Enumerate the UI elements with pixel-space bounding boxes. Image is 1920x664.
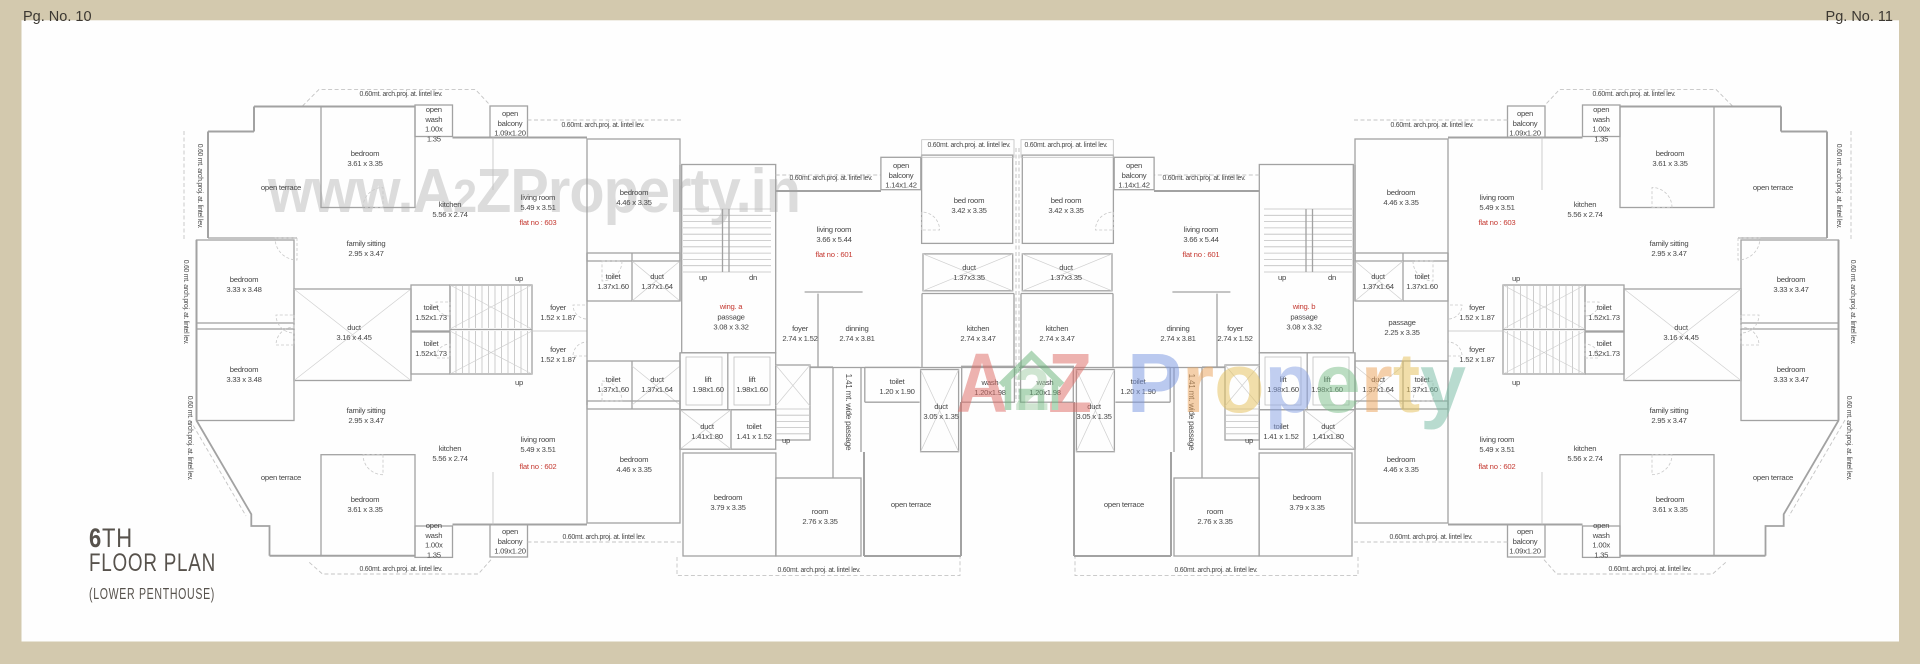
svg-text:balcony: balcony [498,537,523,546]
svg-text:duct: duct [1371,272,1386,281]
svg-text:0.60 mt. arch.proj. at. lintel: 0.60 mt. arch.proj. at. lintel lev. [1835,144,1842,229]
svg-text:up: up [1245,436,1253,445]
svg-text:1.98x1.60: 1.98x1.60 [692,385,724,394]
svg-text:bedroom: bedroom [1777,365,1806,374]
svg-text:family sitting: family sitting [347,239,386,248]
svg-text:1.00x: 1.00x [425,125,443,134]
svg-text:balcony: balcony [1513,537,1538,546]
svg-text:open terrace: open terrace [261,183,301,192]
svg-text:1.37x1.64: 1.37x1.64 [641,282,673,291]
svg-text:1.52 x 1.87: 1.52 x 1.87 [1459,313,1494,322]
svg-text:open: open [1517,527,1533,536]
svg-text:wash: wash [1592,531,1610,540]
svg-text:foyer: foyer [1469,303,1486,312]
svg-text:1.52 x 1.87: 1.52 x 1.87 [540,355,575,364]
svg-text:3.33 x 3.48: 3.33 x 3.48 [226,285,261,294]
svg-text:1.52x1.73: 1.52x1.73 [415,349,447,358]
svg-text:bedroom: bedroom [714,493,743,502]
svg-text:4.46 x 3.35: 4.46 x 3.35 [616,198,651,207]
svg-text:2.76 x 3.35: 2.76 x 3.35 [802,517,837,526]
svg-text:0.60mt. arch.proj. at. lintel: 0.60mt. arch.proj. at. lintel lev. [1391,122,1474,129]
svg-text:1.00x: 1.00x [1592,541,1610,550]
svg-text:5.56 x 2.74: 5.56 x 2.74 [432,454,468,463]
svg-text:3.16 x 4.45: 3.16 x 4.45 [1663,333,1698,342]
svg-text:bedroom: bedroom [1656,495,1685,504]
svg-text:duct: duct [650,272,665,281]
svg-text:4.46 x 3.35: 4.46 x 3.35 [1383,198,1418,207]
svg-text:bedroom: bedroom [1777,275,1806,284]
svg-text:4.46 x 3.35: 4.46 x 3.35 [616,465,651,474]
svg-text:kitchen: kitchen [439,444,462,453]
svg-text:up: up [782,436,790,445]
svg-text:living room: living room [817,225,851,234]
svg-text:3.61 x 3.35: 3.61 x 3.35 [1652,505,1687,514]
svg-text:living room: living room [521,435,555,444]
svg-text:dinning: dinning [1166,324,1189,333]
svg-text:toilet: toilet [606,272,622,281]
svg-text:open terrace: open terrace [891,500,931,509]
svg-text:FLOOR PLAN: FLOOR PLAN [89,549,216,577]
svg-text:1.52 x 1.87: 1.52 x 1.87 [540,313,575,322]
svg-text:1.37x3.35: 1.37x3.35 [1050,273,1082,282]
svg-text:dn: dn [749,273,757,282]
svg-text:toilet: toilet [606,375,622,384]
svg-text:5.56 x 2.74: 5.56 x 2.74 [1567,210,1603,219]
svg-text:1.35: 1.35 [427,550,441,559]
svg-text:room: room [1207,507,1224,516]
svg-text:5.56 x 2.74: 5.56 x 2.74 [1567,454,1603,463]
svg-text:family sitting: family sitting [1650,406,1689,415]
svg-text:1.41x1.80: 1.41x1.80 [691,432,723,441]
svg-text:flat no : 603: flat no : 603 [520,218,557,227]
svg-text:wash: wash [424,531,442,540]
svg-text:3.05 x 1.35: 3.05 x 1.35 [923,412,958,421]
svg-text:2.95 x 3.47: 2.95 x 3.47 [348,416,383,425]
svg-text:0.60mt. arch.proj. at. lintel: 0.60mt. arch.proj. at. lintel lev. [1025,142,1108,149]
svg-text:5.56 x 2.74: 5.56 x 2.74 [432,210,468,219]
svg-text:wash: wash [1592,115,1610,124]
svg-text:foyer: foyer [1469,345,1486,354]
svg-text:open terrace: open terrace [1753,473,1793,482]
svg-text:wash: wash [424,115,442,124]
svg-text:duct: duct [700,422,715,431]
svg-text:flat no : 602: flat no : 602 [1479,462,1516,471]
svg-text:0.60mt. arch.proj. at. lintel: 0.60mt. arch.proj. at. lintel lev. [1390,534,1473,541]
svg-text:family sitting: family sitting [347,406,386,415]
svg-text:open: open [502,109,518,118]
svg-text:toilet: toilet [1597,303,1613,312]
svg-text:open terrace: open terrace [1753,183,1793,192]
svg-text:passage: passage [717,313,744,322]
svg-text:4.46 x 3.35: 4.46 x 3.35 [1383,465,1418,474]
svg-text:kitchen: kitchen [1574,444,1597,453]
svg-text:3.33 x 3.47: 3.33 x 3.47 [1773,375,1808,384]
svg-text:duct: duct [934,402,949,411]
svg-text:living room: living room [1480,193,1514,202]
svg-text:5.49 x 3.51: 5.49 x 3.51 [1479,203,1514,212]
svg-text:bedroom: bedroom [1656,149,1685,158]
svg-text:3.79 x 3.35: 3.79 x 3.35 [1289,503,1324,512]
svg-text:3.16 x 4.45: 3.16 x 4.45 [336,333,371,342]
svg-text:0.60mt. arch.proj. at. lintel: 0.60mt. arch.proj. at. lintel lev. [1163,175,1246,182]
svg-text:duct: duct [347,323,362,332]
svg-text:2.74 x 3.81: 2.74 x 3.81 [839,334,874,343]
svg-text:1.52x1.73: 1.52x1.73 [415,313,447,322]
svg-text:open: open [1517,109,1533,118]
svg-text:3.33 x 3.48: 3.33 x 3.48 [226,375,261,384]
svg-text:1.00x: 1.00x [1592,125,1610,134]
svg-text:kitchen: kitchen [967,324,990,333]
svg-text:1.09x1.20: 1.09x1.20 [1509,547,1541,556]
svg-text:duct: duct [962,263,977,272]
svg-text:3.66 x 5.44: 3.66 x 5.44 [1183,235,1219,244]
svg-text:wing. a: wing. a [719,302,744,311]
svg-text:1.41x1.80: 1.41x1.80 [1312,432,1344,441]
svg-text:1.52x1.73: 1.52x1.73 [1588,313,1620,322]
svg-text:up: up [1278,273,1286,282]
svg-text:3.42 x 3.35: 3.42 x 3.35 [951,206,986,215]
svg-text:living room: living room [521,193,555,202]
svg-text:bedroom: bedroom [351,495,380,504]
svg-text:foyer: foyer [1227,324,1244,333]
svg-text:lift: lift [705,375,713,384]
svg-text:1.09x1.20: 1.09x1.20 [494,129,526,138]
svg-text:flat no : 602: flat no : 602 [520,462,557,471]
svg-text:0.60mt. arch.proj. at. lintel: 0.60mt. arch.proj. at. lintel lev. [360,566,443,573]
svg-text:0.60 mt. arch.proj. at. lintel: 0.60 mt. arch.proj. at. lintel lev. [1845,396,1852,481]
svg-text:1.41 x 1.52: 1.41 x 1.52 [1263,432,1298,441]
svg-text:bed room: bed room [1051,196,1081,205]
svg-text:2.95 x 3.47: 2.95 x 3.47 [1651,249,1686,258]
svg-text:0.60 mt. arch.proj. at. lintel: 0.60 mt. arch.proj. at. lintel lev. [182,260,189,345]
svg-text:1.41 mt. wide passage: 1.41 mt. wide passage [844,374,853,451]
svg-text:dn: dn [1328,273,1336,282]
svg-text:living room: living room [1480,435,1514,444]
svg-text:5.49 x 3.51: 5.49 x 3.51 [1479,445,1514,454]
svg-text:room: room [812,507,829,516]
svg-text:up: up [515,378,523,387]
svg-text:open: open [426,521,442,530]
svg-text:balcony: balcony [1513,119,1538,128]
svg-text:1.41 x 1.52: 1.41 x 1.52 [736,432,771,441]
svg-text:up: up [699,273,707,282]
svg-text:2.95 x 3.47: 2.95 x 3.47 [1651,416,1686,425]
svg-text:5.49 x 3.51: 5.49 x 3.51 [520,445,555,454]
svg-text:duct: duct [650,375,665,384]
svg-text:3.33 x 3.47: 3.33 x 3.47 [1773,285,1808,294]
svg-text:Pg. No. 11: Pg. No. 11 [1826,9,1893,25]
svg-text:1.37x1.60: 1.37x1.60 [597,282,629,291]
svg-text:0.60mt. arch.proj. at. lintel: 0.60mt. arch.proj. at. lintel lev. [1593,91,1676,98]
svg-text:balcony: balcony [1122,171,1147,180]
svg-text:dinning: dinning [845,324,868,333]
svg-text:0.60mt. arch.proj. at. lintel: 0.60mt. arch.proj. at. lintel lev. [562,122,645,129]
svg-text:bed room: bed room [954,196,984,205]
svg-text:1.52x1.73: 1.52x1.73 [1588,349,1620,358]
svg-text:foyer: foyer [550,303,567,312]
svg-text:living room: living room [1184,225,1218,234]
svg-text:0.60 mt. arch.proj. at. lintel: 0.60 mt. arch.proj. at. lintel lev. [1849,260,1856,345]
svg-text:1.35: 1.35 [1594,134,1608,143]
svg-text:3.61 x 3.35: 3.61 x 3.35 [347,159,382,168]
svg-text:1.14x1.42: 1.14x1.42 [1118,181,1150,190]
svg-text:foyer: foyer [792,324,809,333]
svg-text:flat no : 601: flat no : 601 [1183,250,1220,259]
svg-text:balcony: balcony [498,119,523,128]
svg-text:3.08 x 3.32: 3.08 x 3.32 [1286,322,1321,331]
svg-text:0.60mt. arch.proj. at. lintel: 0.60mt. arch.proj. at. lintel lev. [778,567,861,574]
svg-text:passage: passage [1388,318,1415,327]
svg-text:wing. b: wing. b [1292,302,1316,311]
svg-text:kitchen: kitchen [439,200,462,209]
svg-text:bedroom: bedroom [1387,188,1416,197]
svg-text:foyer: foyer [550,345,567,354]
svg-text:bedroom: bedroom [1387,455,1416,464]
svg-text:family sitting: family sitting [1650,239,1689,248]
svg-text:0.60mt. arch.proj. at. lintel: 0.60mt. arch.proj. at. lintel lev. [790,175,873,182]
svg-text:duct: duct [1674,323,1689,332]
svg-text:0.60mt. arch.proj. at. lintel: 0.60mt. arch.proj. at. lintel lev. [1175,567,1258,574]
svg-text:0.60 mt. arch.proj. at. lintel: 0.60 mt. arch.proj. at. lintel lev. [186,396,193,481]
svg-text:bedroom: bedroom [620,455,649,464]
svg-text:3.42 x 3.35: 3.42 x 3.35 [1048,206,1083,215]
svg-text:1.09x1.20: 1.09x1.20 [494,547,526,556]
svg-text:0.60mt. arch.proj. at. lintel: 0.60mt. arch.proj. at. lintel lev. [1609,566,1692,573]
svg-text:2.76 x 3.35: 2.76 x 3.35 [1197,517,1232,526]
svg-text:1.98x1.60: 1.98x1.60 [736,385,768,394]
svg-text:Pg. No. 10: Pg. No. 10 [23,9,92,25]
svg-text:5.49 x 3.51: 5.49 x 3.51 [520,203,555,212]
svg-text:3.79 x 3.35: 3.79 x 3.35 [710,503,745,512]
svg-text:1.35: 1.35 [427,134,441,143]
svg-text:kitchen: kitchen [1574,200,1597,209]
svg-text:toilet: toilet [747,422,763,431]
svg-text:bedroom: bedroom [230,365,259,374]
svg-text:0.60mt. arch.proj. at. lintel: 0.60mt. arch.proj. at. lintel lev. [928,142,1011,149]
svg-text:1.37x1.64: 1.37x1.64 [1362,282,1394,291]
svg-text:open terrace: open terrace [261,473,301,482]
svg-text:toilet: toilet [424,303,440,312]
svg-text:1.37x1.64: 1.37x1.64 [641,385,673,394]
svg-text:bedroom: bedroom [230,275,259,284]
svg-text:0.60mt. arch.proj. at. lintel: 0.60mt. arch.proj. at. lintel lev. [360,91,443,98]
svg-text:1.09x1.20: 1.09x1.20 [1509,129,1541,138]
svg-text:1.35: 1.35 [1594,550,1608,559]
svg-text:3.66 x 5.44: 3.66 x 5.44 [816,235,852,244]
svg-text:toilet: toilet [1415,272,1431,281]
svg-text:1.37x3.35: 1.37x3.35 [953,273,985,282]
svg-text:3.08 x 3.32: 3.08 x 3.32 [713,322,748,331]
svg-text:(LOWER PENTHOUSE): (LOWER PENTHOUSE) [89,586,215,603]
svg-text:3.61 x 3.35: 3.61 x 3.35 [347,505,382,514]
svg-text:bedroom: bedroom [1293,493,1322,502]
svg-text:open: open [502,527,518,536]
svg-text:1.14x1.42: 1.14x1.42 [885,181,917,190]
svg-text:lift: lift [749,375,757,384]
svg-text:flat no : 601: flat no : 601 [816,250,853,259]
svg-text:up: up [1512,274,1520,283]
svg-text:bedroom: bedroom [351,149,380,158]
svg-text:open: open [1593,521,1609,530]
svg-text:toilet: toilet [1597,339,1613,348]
svg-text:toilet: toilet [424,339,440,348]
svg-text:1.37x1.60: 1.37x1.60 [597,385,629,394]
svg-text:kitchen: kitchen [1046,324,1069,333]
svg-text:1.20 x 1.90: 1.20 x 1.90 [879,387,914,396]
svg-text:open: open [893,161,909,170]
svg-text:up: up [515,274,523,283]
svg-text:1.37x1.60: 1.37x1.60 [1406,282,1438,291]
svg-text:2.95 x 3.47: 2.95 x 3.47 [348,249,383,258]
svg-text:open terrace: open terrace [1104,500,1144,509]
svg-text:flat no : 603: flat no : 603 [1479,218,1516,227]
svg-text:open: open [426,105,442,114]
svg-text:up: up [1512,378,1520,387]
svg-text:balcony: balcony [889,171,914,180]
svg-text:open: open [1593,105,1609,114]
svg-text:passage: passage [1290,313,1317,322]
svg-text:Property: Property [1127,336,1466,430]
svg-text:0.60mt. arch.proj. at. lintel: 0.60mt. arch.proj. at. lintel lev. [563,534,646,541]
svg-text:2.74 x 1.52: 2.74 x 1.52 [782,334,817,343]
svg-text:1.00x: 1.00x [425,541,443,550]
svg-text:3.61 x 3.35: 3.61 x 3.35 [1652,159,1687,168]
svg-text:toilet: toilet [890,377,906,386]
svg-text:duct: duct [1059,263,1074,272]
svg-text:0.60 mt. arch.proj. at. lintel: 0.60 mt. arch.proj. at. lintel lev. [196,144,203,229]
svg-text:bedroom: bedroom [620,188,649,197]
svg-text:open: open [1126,161,1142,170]
